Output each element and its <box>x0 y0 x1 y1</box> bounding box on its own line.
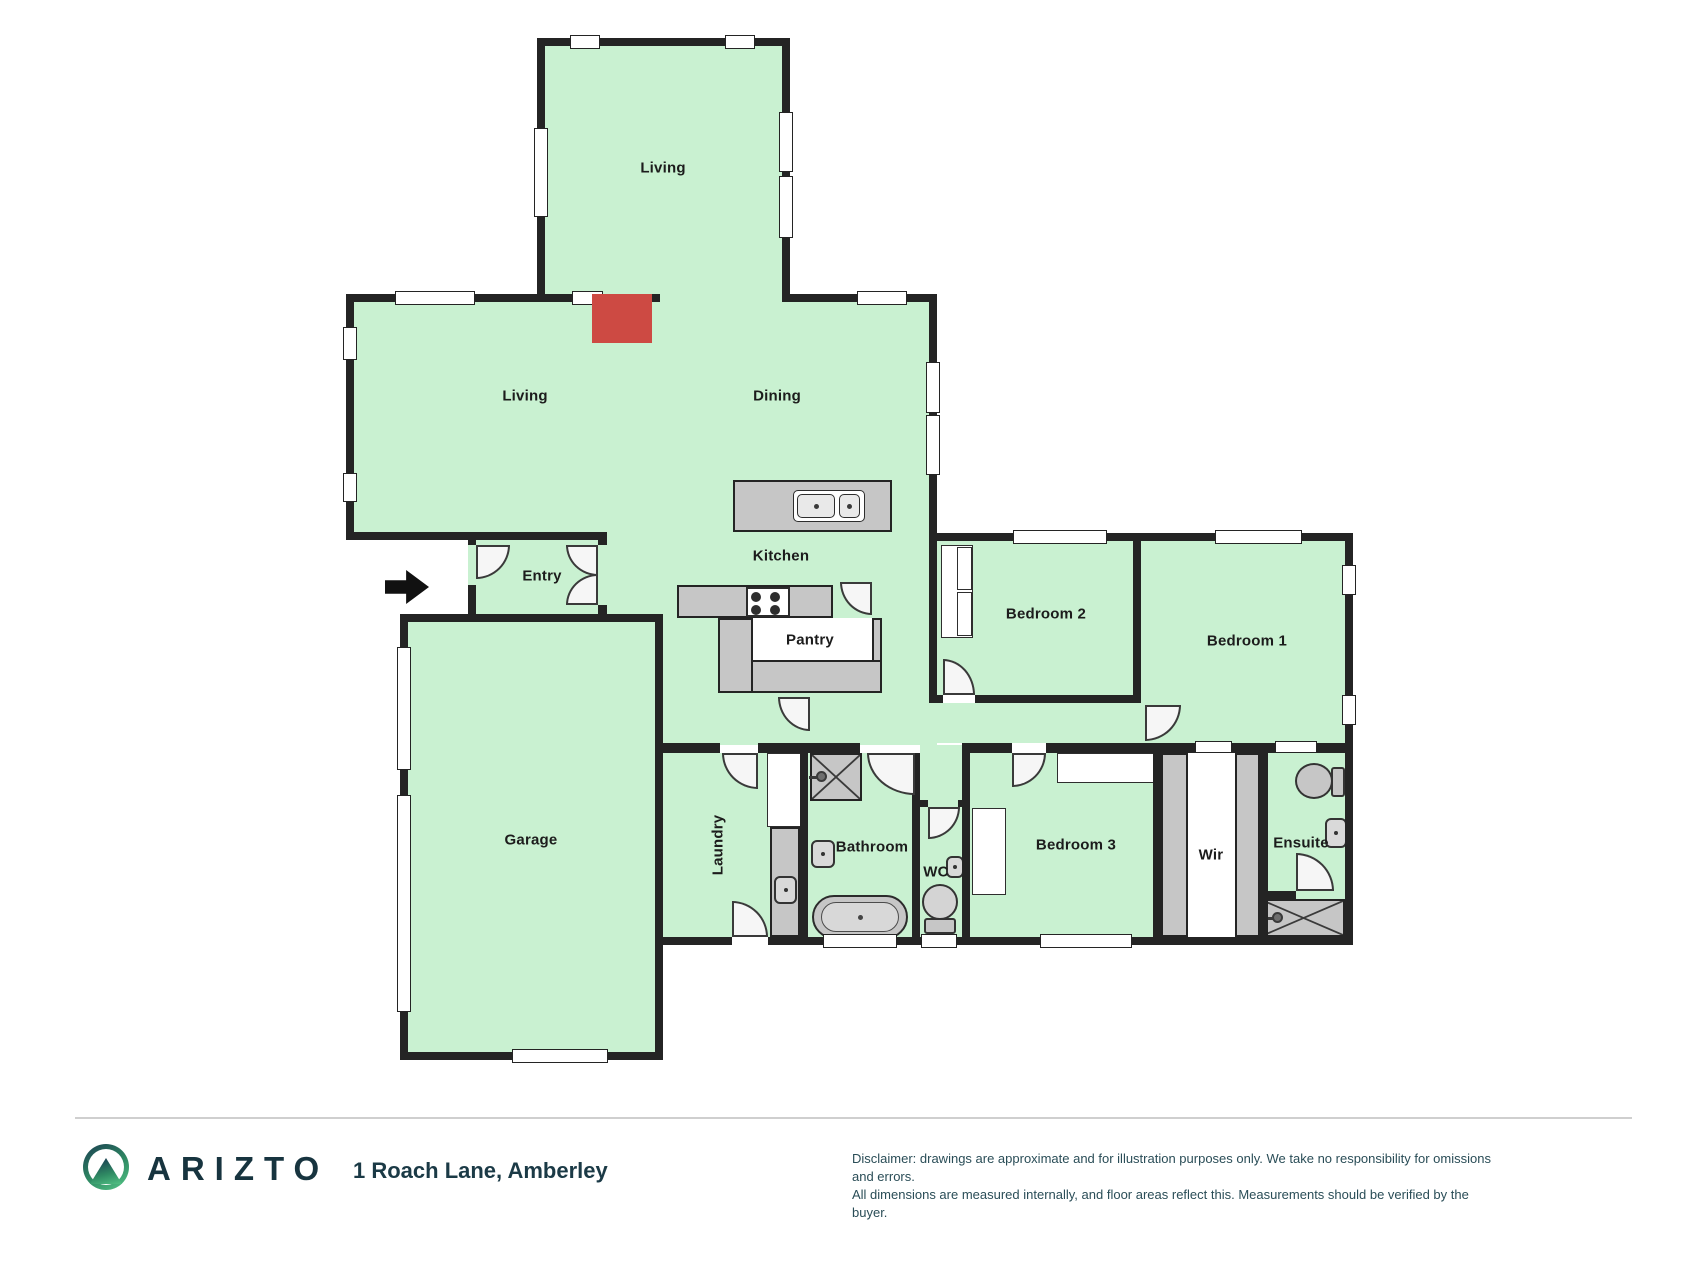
bedroom2-wardrobe-door <box>957 592 972 636</box>
room-label-wc: WC <box>923 864 948 881</box>
entry-arrow-icon <box>385 570 429 604</box>
room-label-pantry: Pantry <box>786 632 834 649</box>
shower-head-icon <box>816 771 827 782</box>
wc-toilet-base <box>924 918 956 934</box>
disclaimer-line-1: Disclaimer: drawings are approximate and… <box>852 1150 1492 1186</box>
disclaimer-line-2: All dimensions are measured internally, … <box>852 1186 1492 1222</box>
window <box>395 291 475 305</box>
brand-name: ARIZTO <box>147 1150 329 1188</box>
room-label-bathroom: Bathroom <box>836 839 908 856</box>
fireplace-icon <box>592 294 652 343</box>
window <box>512 1049 608 1063</box>
wall <box>1232 743 1275 753</box>
window <box>1215 530 1302 544</box>
window <box>1342 695 1356 725</box>
wall <box>468 585 476 622</box>
wall <box>598 605 607 618</box>
bedroom3-wardrobe-left <box>972 808 1006 895</box>
window <box>1040 934 1132 948</box>
property-address: 1 Roach Lane, Amberley <box>353 1158 608 1184</box>
window <box>1013 530 1107 544</box>
wall <box>400 614 663 622</box>
faucet-dot <box>847 504 852 509</box>
room-label-wir: Wir <box>1199 847 1224 864</box>
room-label-bedroom3: Bedroom 3 <box>1036 837 1116 854</box>
window <box>397 795 411 1012</box>
room-label-laundry: Laundry <box>710 815 727 876</box>
wall <box>655 614 663 1052</box>
arizto-logo-icon <box>83 1144 129 1190</box>
window <box>397 647 411 770</box>
wall <box>929 294 937 703</box>
wall <box>1153 753 1161 937</box>
floor-plan-page: Living Living Dining Kitchen Pantry Entr… <box>0 0 1707 1280</box>
wall <box>962 743 1012 753</box>
footer-divider <box>75 1117 1632 1119</box>
room-label-living: Living <box>502 388 547 405</box>
room-label-ensuite: Ensuite <box>1273 835 1329 852</box>
wir-shelf-right <box>1235 753 1260 937</box>
wir-shelf-left <box>1161 753 1188 937</box>
window <box>926 415 940 475</box>
window <box>343 473 357 502</box>
faucet-dot <box>814 504 819 509</box>
window <box>857 291 907 305</box>
ensuite-toilet-tank <box>1331 767 1345 797</box>
bathtub-icon <box>812 895 908 939</box>
bedroom2-wardrobe-door <box>957 547 972 590</box>
window <box>823 934 897 948</box>
room-label-garage: Garage <box>505 832 558 849</box>
pantry-shelf-right <box>872 618 882 662</box>
room-label-entry: Entry <box>522 568 561 585</box>
disclaimer-text: Disclaimer: drawings are approximate and… <box>852 1150 1492 1222</box>
room-label-kitchen: Kitchen <box>753 548 809 565</box>
room-label-bedroom1: Bedroom 1 <box>1207 633 1287 650</box>
room-label-dining: Dining <box>753 388 801 405</box>
wall <box>1260 753 1268 937</box>
wall <box>1133 533 1141 703</box>
window <box>1342 565 1356 595</box>
pantry-shelf-bottom <box>751 660 882 693</box>
window <box>570 35 600 49</box>
window <box>343 327 357 360</box>
hallway <box>933 703 1145 743</box>
wall <box>468 532 476 545</box>
wall <box>975 695 1141 703</box>
window <box>725 35 755 49</box>
room-label-living-top: Living <box>640 160 685 177</box>
window <box>779 176 793 238</box>
window <box>926 362 940 413</box>
pantry-shelf-left <box>718 618 753 693</box>
window <box>779 112 793 172</box>
wall <box>598 532 607 545</box>
bedroom3-wardrobe-top <box>1057 753 1157 783</box>
laundry-sink-icon <box>774 876 797 904</box>
room-label-bedroom2: Bedroom 2 <box>1006 606 1086 623</box>
window <box>534 128 548 217</box>
wall <box>663 937 732 945</box>
ensuite-toilet-icon <box>1295 763 1333 799</box>
wall <box>962 753 970 945</box>
wall <box>663 743 720 753</box>
bathroom-sink-icon <box>811 840 835 868</box>
wall <box>1046 743 1195 753</box>
window <box>1275 741 1317 753</box>
wc-toilet-icon <box>922 884 958 920</box>
window <box>1195 741 1232 753</box>
wall <box>800 753 808 945</box>
wall <box>758 743 860 753</box>
window <box>921 934 957 948</box>
cooktop-icon <box>746 587 790 617</box>
shower-head-icon <box>1272 912 1283 923</box>
